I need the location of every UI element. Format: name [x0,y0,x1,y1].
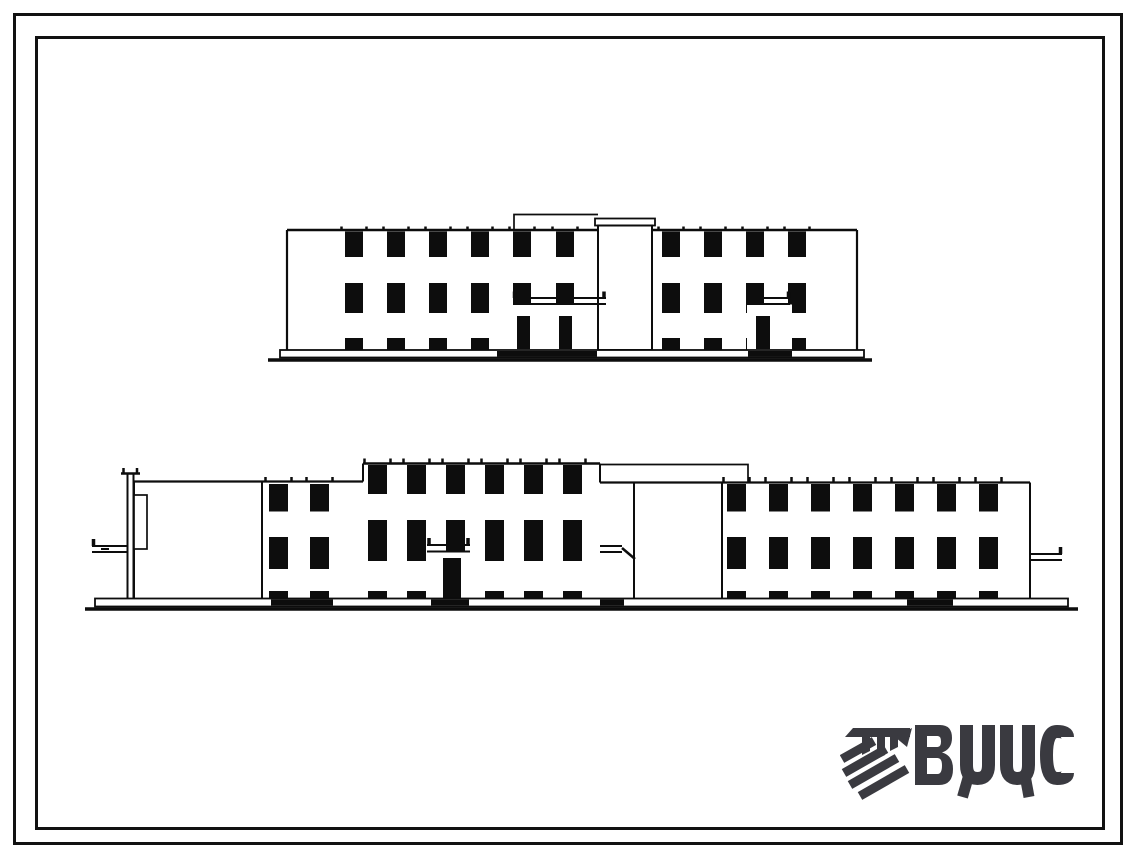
upper-elevation-drawing [268,215,872,361]
side-canopy-left [92,539,127,552]
lower-elevation-drawing [85,459,1078,610]
wall-pilaster [134,495,147,549]
side-canopy-right [1030,547,1062,560]
vcis-logo: ВЦИС [840,716,1080,804]
parapet-line [514,215,598,231]
entrance-bay-center [431,552,469,598]
logo-wordmark [915,725,1068,797]
blueprint-sheet: ВЦИС [0,0,1134,863]
logo-graphic [840,716,1080,804]
vcis-hatched-emblem-icon [842,728,912,796]
stair-tower [595,219,655,351]
